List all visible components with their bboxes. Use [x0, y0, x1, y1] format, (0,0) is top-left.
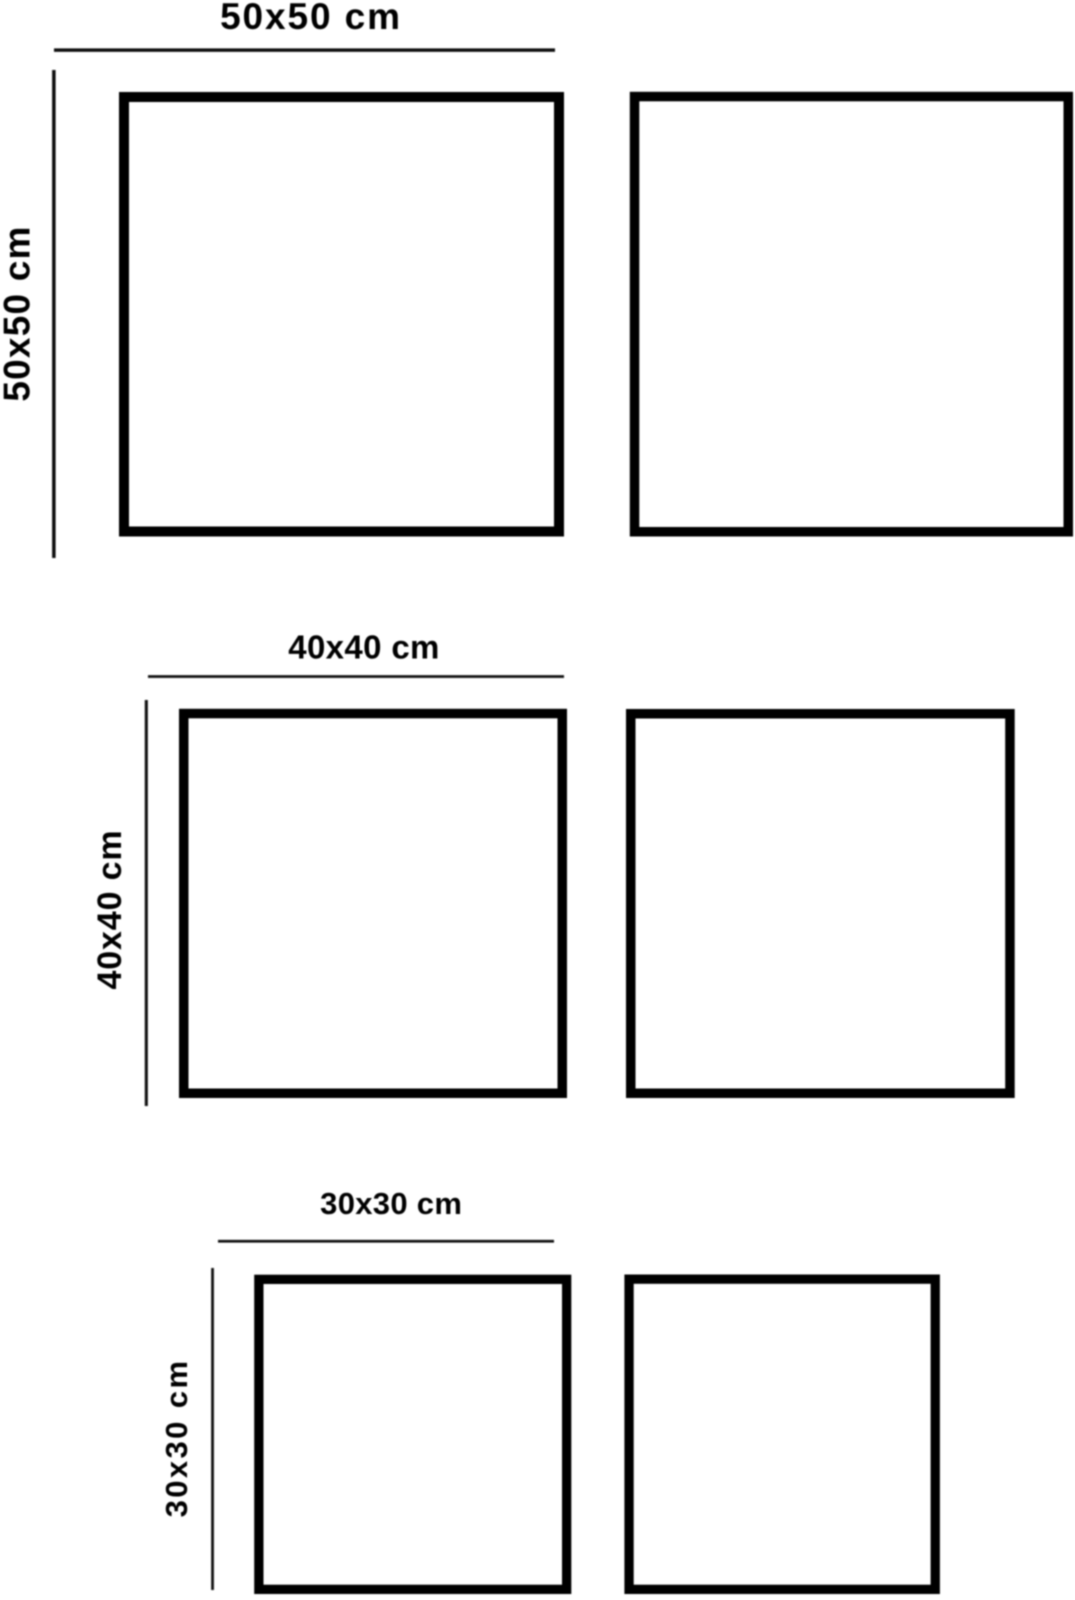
- svg-text:30x30 cm: 30x30 cm: [320, 1186, 462, 1221]
- svg-text:40x40 cm: 40x40 cm: [288, 629, 439, 666]
- svg-text:50x50 cm: 50x50 cm: [0, 225, 38, 401]
- svg-text:50x50 cm: 50x50 cm: [220, 0, 402, 37]
- svg-text:30x30 cm: 30x30 cm: [159, 1359, 194, 1518]
- svg-text:40x40 cm: 40x40 cm: [91, 830, 129, 990]
